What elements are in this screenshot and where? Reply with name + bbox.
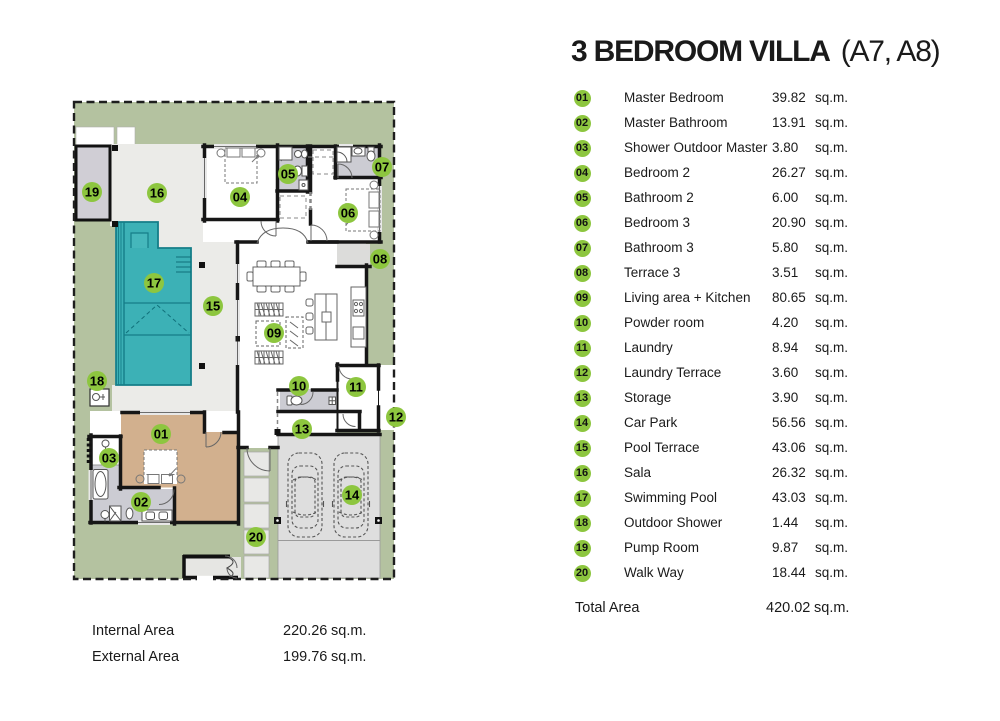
svg-text:07: 07 — [375, 160, 389, 175]
svg-text:14: 14 — [345, 488, 360, 503]
svg-text:05: 05 — [281, 167, 295, 182]
svg-text:10: 10 — [292, 379, 306, 394]
svg-text:16: 16 — [150, 186, 164, 201]
svg-text:15: 15 — [206, 299, 220, 314]
svg-text:01: 01 — [154, 427, 168, 442]
svg-text:06: 06 — [341, 206, 355, 221]
svg-text:11: 11 — [349, 380, 363, 395]
svg-text:12: 12 — [389, 410, 403, 425]
svg-text:18: 18 — [90, 374, 104, 389]
svg-text:20: 20 — [249, 530, 263, 545]
svg-text:09: 09 — [267, 326, 281, 341]
svg-text:04: 04 — [233, 190, 248, 205]
svg-text:17: 17 — [147, 276, 161, 291]
svg-text:03: 03 — [102, 451, 116, 466]
svg-text:02: 02 — [134, 495, 148, 510]
svg-text:13: 13 — [295, 422, 309, 437]
svg-text:19: 19 — [85, 185, 99, 200]
svg-text:08: 08 — [373, 252, 387, 267]
